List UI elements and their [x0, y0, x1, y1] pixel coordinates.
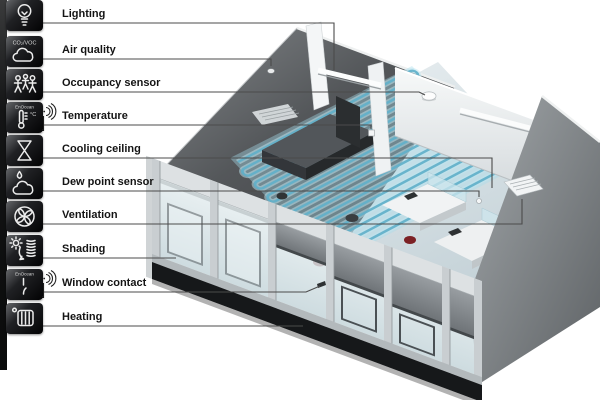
radiator-icon	[6, 303, 43, 334]
fan-icon	[6, 201, 43, 232]
label-heating: Heating	[62, 311, 102, 323]
room-automation-infographic: CO₂/VOC EnOcean °C	[0, 0, 600, 400]
occupancy-sensor-device	[422, 92, 436, 100]
temperature-sensor-device	[369, 130, 375, 136]
label-air-quality: Air quality	[62, 44, 116, 56]
air-quality-icon-text: CO₂/VOC	[13, 41, 37, 47]
enocean-icon-text: EnOcean	[15, 105, 34, 110]
label-occupancy-sensor: Occupancy sensor	[62, 77, 160, 89]
dew-point-icon	[6, 168, 43, 199]
label-ventilation: Ventilation	[62, 209, 118, 221]
leader-air-quality	[40, 59, 271, 66]
occupancy-people-icon	[6, 69, 43, 100]
light-bulb-icon	[6, 0, 43, 31]
label-cooling-ceiling: Cooling ceiling	[62, 143, 141, 155]
enocean-icon-text: EnOcean	[15, 272, 34, 277]
label-temperature: Temperature	[62, 110, 128, 122]
label-dew-point-sensor: Dew point sensor	[62, 176, 154, 188]
office-chair	[346, 214, 359, 222]
dew-point-sensor-device	[477, 199, 482, 204]
air-quality-cloud-icon: CO₂/VOC	[6, 36, 43, 67]
thermometer-icon: EnOcean °C	[6, 102, 43, 133]
air-quality-sensor-device	[267, 69, 274, 74]
hourglass-icon	[6, 135, 43, 166]
celsius-icon-text: °C	[30, 112, 36, 118]
window-contact-icon: EnOcean	[6, 269, 43, 300]
label-lighting: Lighting	[62, 8, 105, 20]
label-shading: Shading	[62, 243, 105, 255]
office-3d-cutaway-rendering	[0, 0, 600, 400]
office-chair-red	[404, 236, 416, 244]
label-window-contact: Window contact	[62, 277, 146, 289]
window-casement	[226, 220, 260, 287]
sun-blinds-icon	[6, 235, 43, 266]
